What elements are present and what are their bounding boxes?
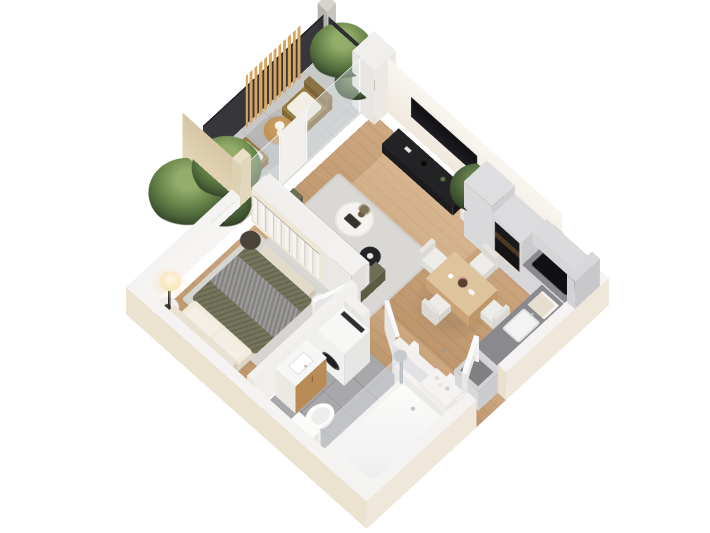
sink-faucet bbox=[530, 312, 535, 316]
console-book bbox=[404, 146, 412, 153]
side-table-bowl bbox=[365, 252, 374, 260]
decor-sphere bbox=[420, 160, 428, 168]
table-flowers bbox=[456, 277, 470, 290]
shelf-bottles bbox=[434, 375, 440, 381]
table-cup bbox=[447, 273, 454, 280]
table-plate bbox=[467, 288, 476, 296]
console-plant bbox=[439, 176, 446, 183]
floor-plan-render bbox=[0, 0, 710, 533]
vanity-drawer-handle bbox=[312, 376, 313, 383]
